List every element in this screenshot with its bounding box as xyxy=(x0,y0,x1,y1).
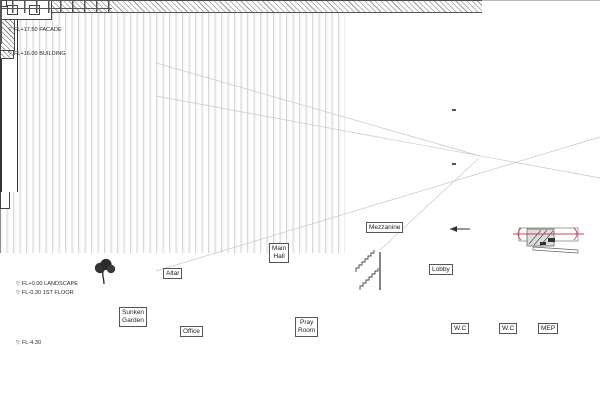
level-label-building: ▽ FL+16.00 BUILDING xyxy=(8,51,66,57)
room-label-wc-left: W.C xyxy=(451,323,469,334)
level-text: FL-4.30 xyxy=(22,340,41,346)
room-label-lobby: Lobby xyxy=(429,264,453,275)
level-label-basement: ▽ FL-4.30 xyxy=(16,340,41,346)
level-label-facade: ▽ FL+17.50 FACADE xyxy=(8,27,62,33)
detail-red-markers xyxy=(513,228,584,240)
pray-room-chairs xyxy=(0,0,112,13)
level-label-first-floor: ▽ FL-0.30 1ST FLOOR xyxy=(16,290,74,296)
level-marker-icon: ▽ xyxy=(16,291,20,296)
room-label-altar: Altar xyxy=(163,268,182,279)
level-marker-icon: ▽ xyxy=(16,341,20,346)
level-text: FL+16.00 BUILDING xyxy=(14,51,66,57)
level-label-landscape: ▽ FL+0.00 LANDSCAPE xyxy=(16,281,78,287)
level-marker-icon: ▽ xyxy=(8,52,12,57)
tree-icon xyxy=(95,259,115,284)
stairs xyxy=(356,250,380,290)
room-label-main-hall: Main Hall xyxy=(269,243,289,263)
level-text: FL+17.50 FACADE xyxy=(14,27,62,33)
section-drawing-canvas: ▽ FL+17.50 FACADE ▽ FL+16.00 BUILDING ▽ … xyxy=(0,0,600,400)
level-text: FL-0.30 1ST FLOOR xyxy=(22,290,74,296)
louver-detail-callout xyxy=(513,228,584,253)
room-label-wc-right: W.C xyxy=(499,323,517,334)
direction-arrow-icon xyxy=(450,109,470,232)
level-marker-icon: ▽ xyxy=(16,282,20,287)
room-label-mep: MEP xyxy=(538,323,558,334)
room-label-mezzanine: Mezzanine xyxy=(366,222,403,233)
level-marker-icon: ▽ xyxy=(8,28,12,33)
room-label-sunken-garden: Sunken Garden xyxy=(119,307,147,327)
room-label-office: Office xyxy=(180,326,203,337)
room-label-pray-room: Pray Room xyxy=(295,317,318,337)
level-text: FL+0.00 LANDSCAPE xyxy=(22,281,78,287)
